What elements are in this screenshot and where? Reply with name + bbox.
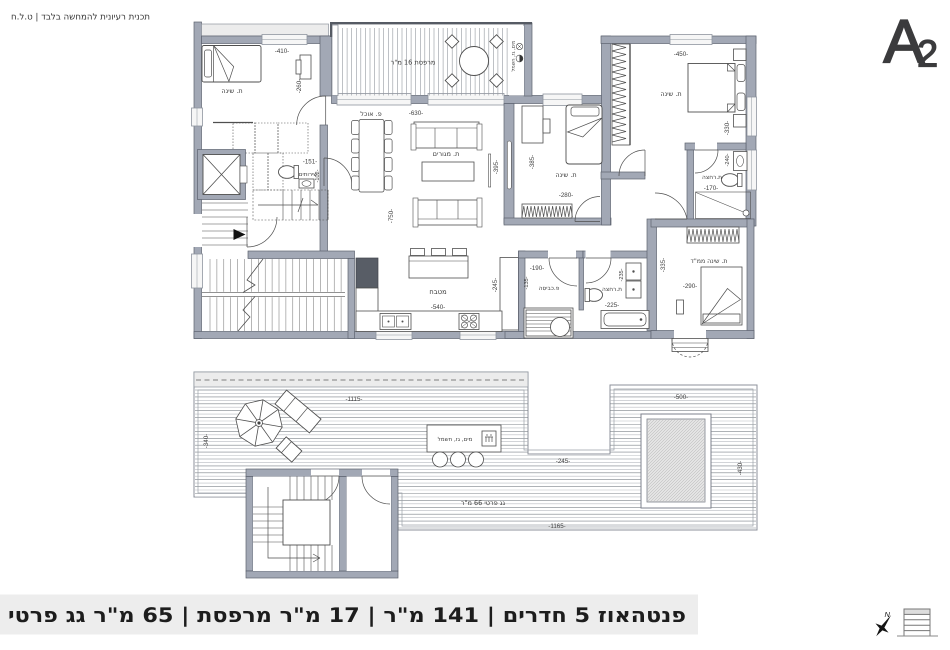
svg-text:-410-: -410- xyxy=(275,48,289,55)
svg-text:-1115-: -1115- xyxy=(346,396,363,403)
svg-text:-280-: -280- xyxy=(559,192,573,199)
svg-text:-290-: -290- xyxy=(683,283,697,290)
svg-text:-240-: -240- xyxy=(725,153,731,166)
svg-text:-385-: -385- xyxy=(529,155,536,169)
svg-text:2: 2 xyxy=(917,34,938,76)
svg-text:-340-: -340- xyxy=(203,434,210,448)
svg-text:-151-: -151- xyxy=(303,159,317,166)
svg-text:-540-: -540- xyxy=(431,304,445,311)
svg-text:-430-: -430- xyxy=(737,461,744,475)
svg-text:-750-: -750- xyxy=(388,209,395,223)
svg-text:-170-: -170- xyxy=(704,185,718,192)
svg-text:-395-: -395- xyxy=(493,160,500,174)
svg-text:-225-: -225- xyxy=(605,302,619,309)
svg-text:-245-: -245- xyxy=(492,278,499,292)
svg-text:-190-: -190- xyxy=(530,265,544,272)
svg-text:-135-: -135- xyxy=(524,276,530,289)
svg-text:-1165-: -1165- xyxy=(548,523,565,530)
svg-text:-330-: -330- xyxy=(724,121,731,135)
svg-text:-335-: -335- xyxy=(660,258,667,272)
svg-text:-102-: -102- xyxy=(315,169,321,182)
svg-text:-450-: -450- xyxy=(674,51,688,58)
svg-text:-260-: -260- xyxy=(296,79,303,93)
svg-text:-630-: -630- xyxy=(409,110,423,117)
svg-text:N: N xyxy=(885,610,891,619)
svg-text:-235-: -235- xyxy=(619,268,625,281)
svg-text:-245-: -245- xyxy=(556,458,570,465)
svg-text:-500-: -500- xyxy=(674,394,688,401)
